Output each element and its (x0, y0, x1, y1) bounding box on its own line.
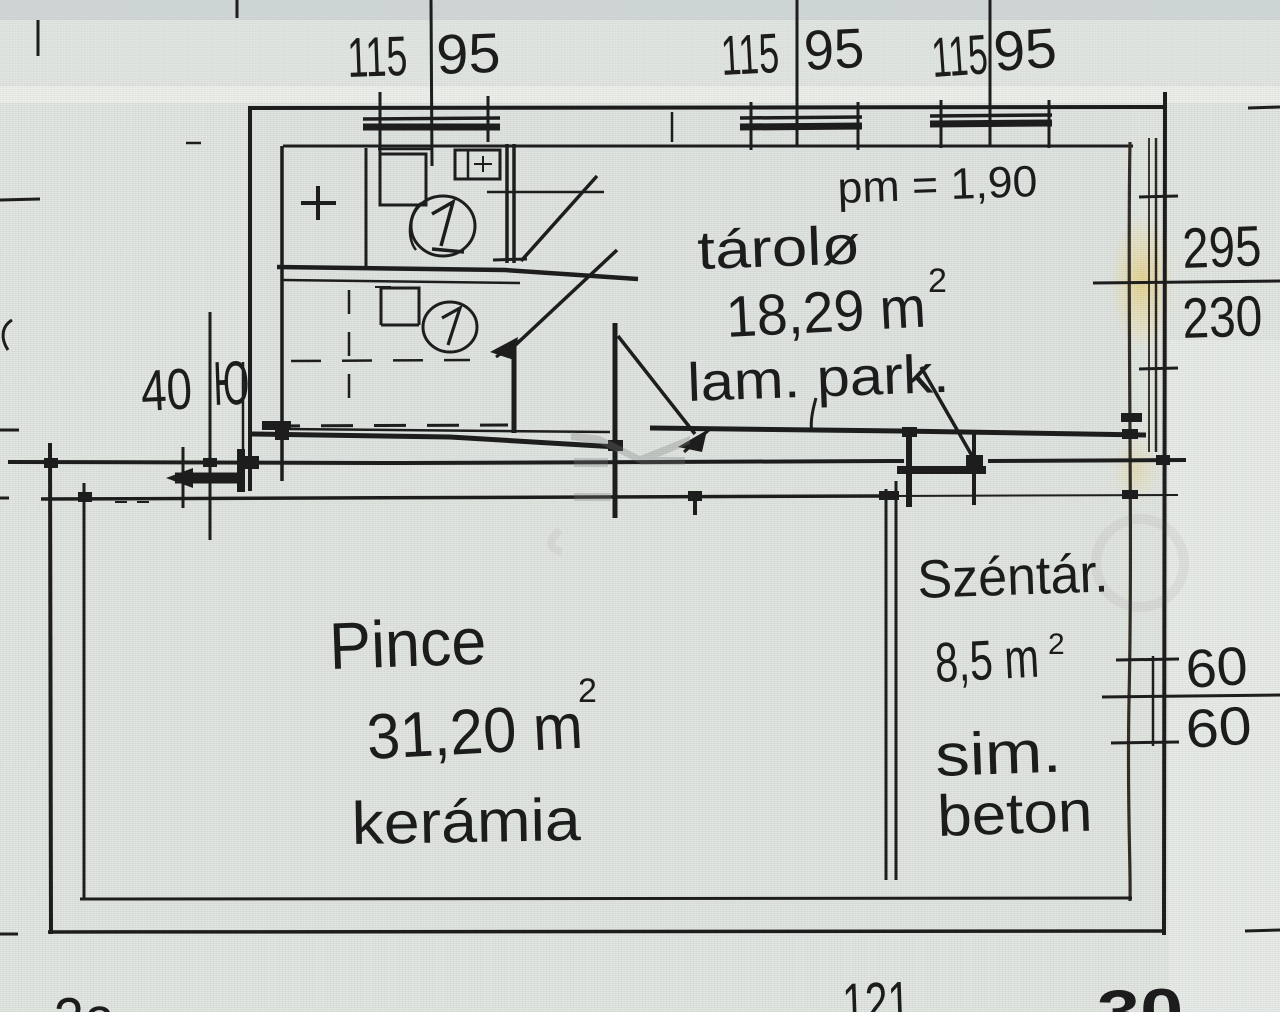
svg-text:tárolø: tárolø (696, 215, 861, 281)
svg-text:sim.: sim. (934, 718, 1062, 789)
svg-text:Ю: Ю (212, 349, 250, 419)
svg-text:3o: 3o (53, 984, 115, 1012)
svg-text:230: 230 (1181, 284, 1263, 351)
svg-text:30: 30 (1096, 976, 1184, 1012)
svg-text:Széntár.: Széntár. (916, 543, 1109, 610)
svg-text:2: 2 (578, 672, 597, 710)
svg-text:Pince: Pince (328, 604, 487, 683)
svg-text:40: 40 (139, 356, 193, 424)
svg-text:95: 95 (435, 21, 501, 86)
svg-text:31,20 m: 31,20 m (365, 690, 584, 773)
svg-text:2: 2 (1048, 628, 1065, 661)
svg-text:18,29 m: 18,29 m (724, 275, 927, 350)
svg-text:95: 95 (991, 16, 1058, 83)
svg-text:115: 115 (346, 24, 408, 89)
svg-text:295: 295 (1181, 214, 1262, 281)
svg-text:beton: beton (936, 779, 1093, 849)
svg-text:95: 95 (802, 16, 865, 82)
svg-text:115: 115 (719, 21, 780, 87)
svg-text:8,5 m: 8,5 m (933, 626, 1040, 694)
svg-text:121: 121 (841, 970, 911, 1012)
svg-text:60: 60 (1184, 636, 1250, 700)
svg-text:115: 115 (929, 22, 989, 89)
svg-text:kerámia: kerámia (351, 786, 582, 857)
svg-text:lam. park.: lam. park. (686, 344, 950, 413)
svg-text:pm = 1,90: pm = 1,90 (837, 157, 1039, 213)
svg-text:60: 60 (1184, 696, 1254, 760)
svg-text:2: 2 (928, 262, 947, 300)
